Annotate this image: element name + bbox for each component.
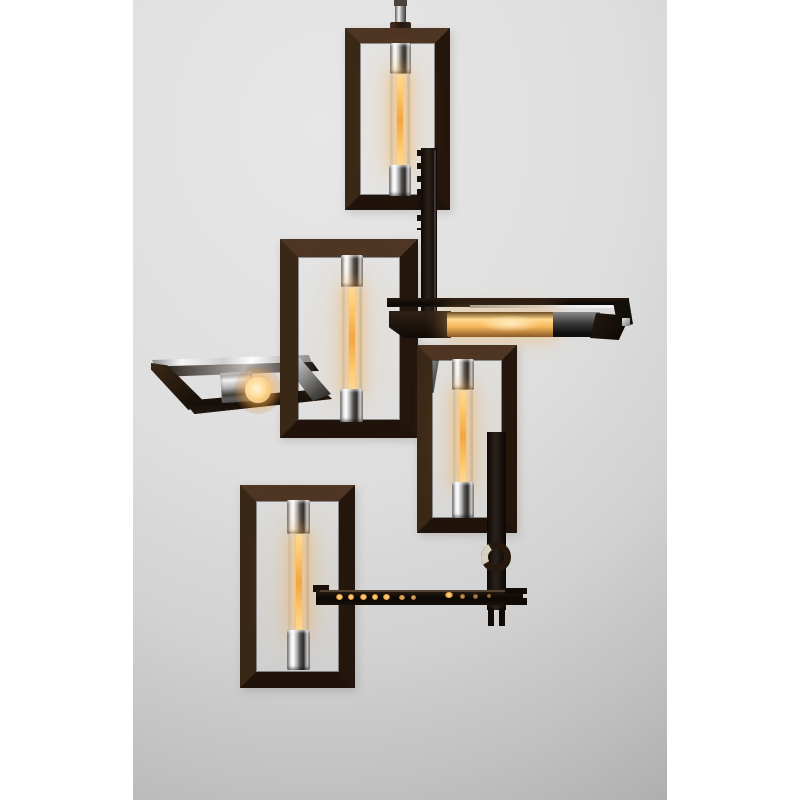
frame-mid-left-socket-top <box>341 255 363 287</box>
reflection-dot <box>445 592 453 598</box>
reflection-dot <box>411 595 416 600</box>
frame-mid-left-socket-bottom <box>340 389 363 422</box>
frame-horizontal-bulb-hotspot <box>480 315 540 332</box>
cross-bar-fork-bottom <box>505 598 527 605</box>
tilted-bulb-end <box>245 377 271 403</box>
reflection-dot <box>399 595 405 600</box>
frame-bottom-left-socket-top <box>287 500 310 534</box>
side-bar-lower-prong-left <box>488 608 494 626</box>
frame-bottom-left-socket-bottom <box>287 630 310 670</box>
bulb-filament <box>460 390 466 483</box>
frame-top-socket-bottom <box>389 165 411 196</box>
reflection-dot <box>360 594 367 600</box>
frame-mid-right-socket-bottom <box>452 482 474 518</box>
frame-bottom-left-bulb <box>288 533 309 632</box>
reflection-dot <box>383 594 390 600</box>
reflection-dot <box>348 594 354 600</box>
frame-horizontal-right-tip-chrome <box>622 318 630 326</box>
frame-top-bulb <box>390 73 410 167</box>
frame-top-socket-top <box>390 43 411 74</box>
frame-mid-right-bulb <box>453 389 473 484</box>
reflection-dot <box>372 594 378 600</box>
reflection-dot <box>336 594 343 600</box>
frame-horizontal-chrome-line <box>470 305 628 308</box>
side-bar-upper-teeth <box>417 150 422 230</box>
side-bar-lower <box>487 432 506 610</box>
bulb-filament <box>296 534 302 631</box>
bulb-filament <box>349 287 355 390</box>
side-bar-upper-highlight <box>434 150 436 335</box>
reflection-dot <box>473 594 478 599</box>
stem-rod-cap <box>394 0 407 6</box>
frame-mid-right-socket-top <box>452 359 474 390</box>
bulb-filament <box>397 74 403 166</box>
cross-bar-fork-top <box>505 588 527 594</box>
side-bar-lower-prong-right <box>499 608 505 626</box>
reflection-dot <box>460 594 465 599</box>
cross-bar-top-sheen <box>320 590 520 592</box>
frame-mid-left-bulb <box>342 286 362 391</box>
reflection-dot <box>487 594 491 598</box>
